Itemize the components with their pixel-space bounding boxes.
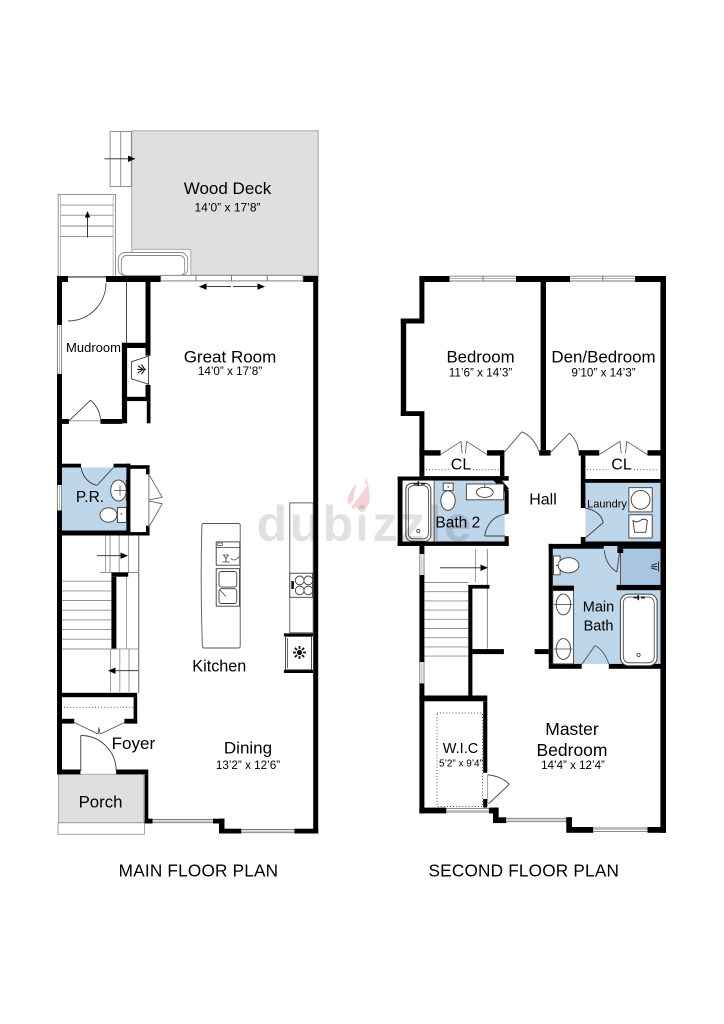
svg-text:14’0” x 17’8”: 14’0” x 17’8” [194, 201, 260, 215]
svg-text:9’10” x 14’3”: 9’10” x 14’3” [571, 367, 635, 380]
svg-text:14’0” x 17’8”: 14’0” x 17’8” [198, 365, 262, 378]
svg-text:CL: CL [611, 457, 632, 474]
svg-text:Kitchen: Kitchen [192, 657, 246, 675]
svg-text:Mudroom: Mudroom [66, 340, 121, 355]
svg-text:11’6” x 14’3”: 11’6” x 14’3” [449, 367, 513, 380]
svg-text:Master: Master [545, 719, 599, 739]
svg-text:W.I.C: W.I.C [443, 741, 478, 757]
svg-text:13’2” x 12’6”: 13’2” x 12’6” [216, 759, 280, 772]
svg-text:Hall: Hall [529, 492, 557, 509]
svg-text:Bedroom: Bedroom [446, 348, 514, 367]
svg-text:SECOND FLOOR PLAN: SECOND FLOOR PLAN [429, 861, 620, 881]
svg-text:P.R.: P.R. [76, 489, 104, 506]
svg-text:Dining: Dining [224, 739, 272, 758]
svg-text:5’2” x 9’4”: 5’2” x 9’4” [439, 759, 483, 770]
svg-text:zzle: zzle [373, 496, 475, 552]
svg-text:MAIN FLOOR PLAN: MAIN FLOOR PLAN [119, 861, 279, 881]
svg-text:Den/Bedroom: Den/Bedroom [551, 348, 655, 367]
svg-text:Laundry: Laundry [587, 499, 627, 511]
svg-text:Bath: Bath [584, 619, 614, 635]
svg-text:Porch: Porch [79, 793, 123, 812]
svg-text:dub: dub [257, 496, 356, 552]
svg-text:CL: CL [451, 457, 472, 474]
svg-text:Wood Deck: Wood Deck [184, 179, 272, 198]
svg-text:Great Room: Great Room [184, 348, 277, 367]
svg-text:Foyer: Foyer [112, 734, 156, 753]
svg-text:Bedroom: Bedroom [536, 740, 607, 760]
svg-text:Main: Main [583, 600, 614, 616]
svg-text:14’4” x 12’4”: 14’4” x 12’4” [541, 759, 605, 772]
